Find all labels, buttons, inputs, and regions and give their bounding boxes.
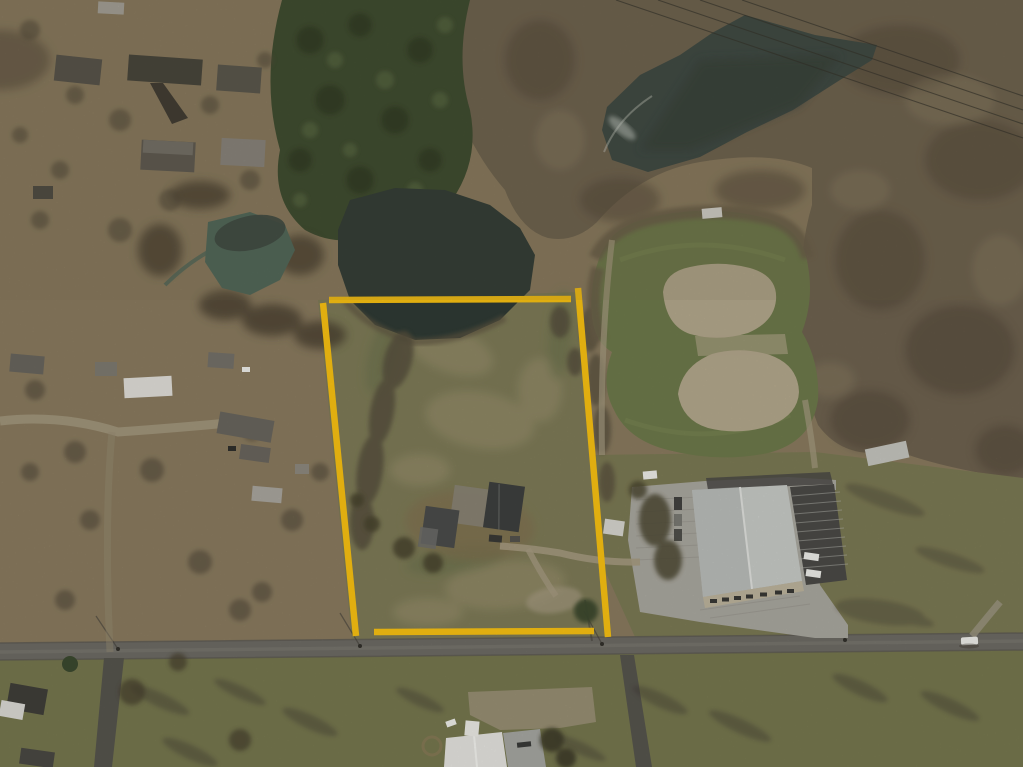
aerial-photo — [0, 0, 1023, 767]
aerial-photo-canvas — [0, 0, 1023, 767]
tone-warm — [0, 0, 1023, 300]
